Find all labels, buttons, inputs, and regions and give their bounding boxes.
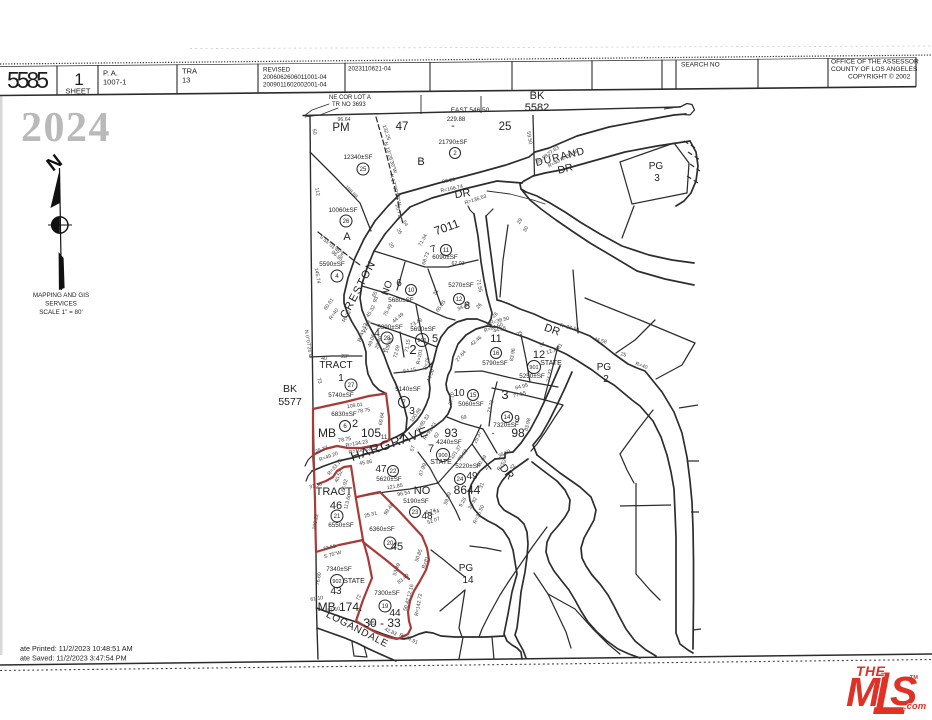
svg-text:5250±SF: 5250±SF: [519, 373, 545, 380]
svg-text:901: 901: [417, 338, 426, 344]
svg-text:MB: MB: [318, 426, 336, 440]
svg-text:901: 901: [529, 365, 538, 371]
svg-text:11: 11: [443, 248, 450, 254]
svg-text:19: 19: [382, 604, 389, 610]
svg-text:COUNTY OF LOS ANGELES: COUNTY OF LOS ANGELES: [831, 66, 918, 73]
svg-text:SCALE 1" = 80': SCALE 1" = 80': [39, 309, 83, 316]
svg-text:5620±SF: 5620±SF: [376, 476, 402, 483]
svg-text:12340±SF: 12340±SF: [343, 154, 372, 161]
svg-text:105: 105: [361, 426, 381, 440]
svg-text:14: 14: [462, 575, 474, 586]
svg-text:13: 13: [182, 76, 190, 85]
svg-text:MAPPING AND GIS: MAPPING AND GIS: [33, 292, 89, 299]
svg-text:6360±SF: 6360±SF: [369, 526, 395, 533]
svg-text:7320±SF: 7320±SF: [493, 422, 519, 429]
svg-text:5740±SF: 5740±SF: [328, 392, 354, 399]
svg-text:96.64: 96.64: [338, 117, 351, 123]
svg-text:22: 22: [390, 469, 397, 475]
svg-text:B: B: [417, 156, 424, 168]
svg-text:15: 15: [470, 393, 477, 399]
svg-text:5060±SF: 5060±SF: [458, 401, 484, 408]
svg-text:2: 2: [352, 418, 358, 430]
svg-text:23: 23: [412, 510, 419, 516]
svg-text:5: 5: [432, 333, 438, 345]
svg-text:5680±SF: 5680±SF: [388, 297, 414, 304]
svg-text:12: 12: [456, 297, 463, 303]
svg-text:BK: BK: [283, 383, 297, 395]
svg-text:5790±SF: 5790±SF: [482, 360, 508, 367]
svg-text:24: 24: [457, 477, 464, 483]
svg-text:47: 47: [396, 121, 409, 133]
svg-text:23°: 23°: [341, 354, 349, 360]
svg-text:5585: 5585: [7, 67, 49, 93]
svg-text:11: 11: [490, 333, 501, 345]
svg-text:7340±SF: 7340±SF: [326, 566, 352, 573]
svg-text:P. A.: P. A.: [103, 69, 118, 78]
svg-text:TRA: TRA: [182, 67, 197, 76]
svg-text:59: 59: [460, 415, 467, 422]
svg-text:47: 47: [375, 464, 387, 475]
svg-text:SHEET: SHEET: [65, 87, 90, 96]
svg-text:11,: 11,: [381, 435, 389, 441]
svg-text:14: 14: [504, 415, 511, 421]
svg-text:1007-1: 1007-1: [103, 78, 126, 87]
svg-text:902: 902: [332, 579, 341, 585]
svg-text:62.03: 62.03: [452, 261, 465, 267]
svg-text:26: 26: [343, 219, 350, 225]
svg-text:TM: TM: [910, 675, 918, 681]
svg-text:5590±SF: 5590±SF: [319, 261, 345, 268]
svg-text:7300±SF: 7300±SF: [374, 590, 400, 597]
svg-text:NE COR LOT A: NE COR LOT A: [329, 95, 371, 101]
svg-text:2023110621-04: 2023110621-04: [348, 66, 391, 73]
svg-text:10060±SF: 10060±SF: [328, 207, 357, 214]
svg-text:2024: 2024: [21, 105, 111, 151]
svg-text:5190±SF: 5190±SF: [403, 498, 429, 505]
svg-text:STATE: STATE: [540, 360, 562, 367]
svg-text:21790±SF: 21790±SF: [438, 139, 467, 146]
svg-text:ate Saved: 11/2/2023 3:47:54 P: ate Saved: 11/2/2023 3:47:54 PM: [20, 654, 127, 663]
svg-text:PM: PM: [332, 122, 349, 134]
svg-text:2009011602002001-04: 2009011602002001-04: [263, 82, 327, 89]
svg-text:5390±SF: 5390±SF: [377, 324, 403, 331]
svg-text:6830±SF: 6830±SF: [331, 411, 357, 418]
svg-text:93: 93: [444, 426, 458, 440]
svg-text:40: 40: [321, 356, 327, 362]
svg-text:55: 55: [369, 621, 375, 627]
svg-text:PG: PG: [649, 161, 664, 172]
svg-text:2: 2: [603, 374, 609, 385]
svg-text:STATE: STATE: [430, 459, 452, 466]
svg-text:49: 49: [466, 471, 478, 482]
svg-text:ate Printed: 11/2/2023 10:48:5: ate Printed: 11/2/2023 10:48:51 AM: [20, 644, 133, 653]
svg-text:5582: 5582: [525, 102, 549, 114]
svg-text:NO: NO: [414, 485, 431, 497]
svg-text:900: 900: [438, 453, 447, 459]
svg-text:A: A: [343, 231, 351, 243]
svg-text:8644: 8644: [454, 483, 481, 497]
svg-text:TR NO 3693: TR NO 3693: [332, 102, 366, 108]
svg-text:COPYRIGHT © 2002: COPYRIGHT © 2002: [848, 73, 911, 81]
svg-text:-: -: [492, 428, 495, 438]
svg-text:OFFICE OF THE ASSESSOR: OFFICE OF THE ASSESSOR: [831, 59, 919, 66]
svg-text:3: 3: [654, 173, 660, 184]
svg-text:7: 7: [428, 443, 434, 455]
svg-text:REVISED: REVISED: [263, 67, 291, 74]
svg-text:6: 6: [396, 278, 402, 289]
svg-text:5140±SF: 5140±SF: [395, 386, 421, 393]
svg-text:.com: .com: [904, 701, 927, 712]
svg-text:50: 50: [311, 128, 318, 135]
svg-text:25: 25: [360, 167, 367, 173]
svg-text:21: 21: [334, 514, 341, 520]
svg-text:25: 25: [499, 121, 512, 133]
svg-text:SEARCH NO: SEARCH NO: [681, 62, 720, 69]
svg-text:5577: 5577: [278, 396, 302, 408]
svg-text:THE: THE: [856, 663, 886, 679]
svg-text:44: 44: [389, 608, 401, 619]
svg-text:27: 27: [348, 383, 355, 389]
svg-text:STATE: STATE: [343, 578, 365, 585]
svg-text:2006062606011001-04: 2006062606011001-04: [263, 74, 327, 81]
svg-text:5270±SF: 5270±SF: [448, 282, 474, 289]
svg-text:PG: PG: [597, 362, 612, 373]
svg-text:EAST 546.50: EAST 546.50: [451, 107, 490, 114]
svg-text:229.88: 229.88: [447, 117, 466, 123]
svg-text:20: 20: [387, 541, 394, 547]
svg-text:BK: BK: [530, 90, 545, 102]
svg-text:PG: PG: [459, 563, 474, 574]
svg-text:6550±SF: 6550±SF: [328, 522, 354, 529]
svg-text:10: 10: [408, 288, 415, 294]
svg-text:1: 1: [338, 373, 344, 384]
svg-text:SERVICES: SERVICES: [45, 301, 77, 308]
svg-text:3: 3: [501, 387, 508, 402]
svg-text:16: 16: [493, 351, 500, 357]
